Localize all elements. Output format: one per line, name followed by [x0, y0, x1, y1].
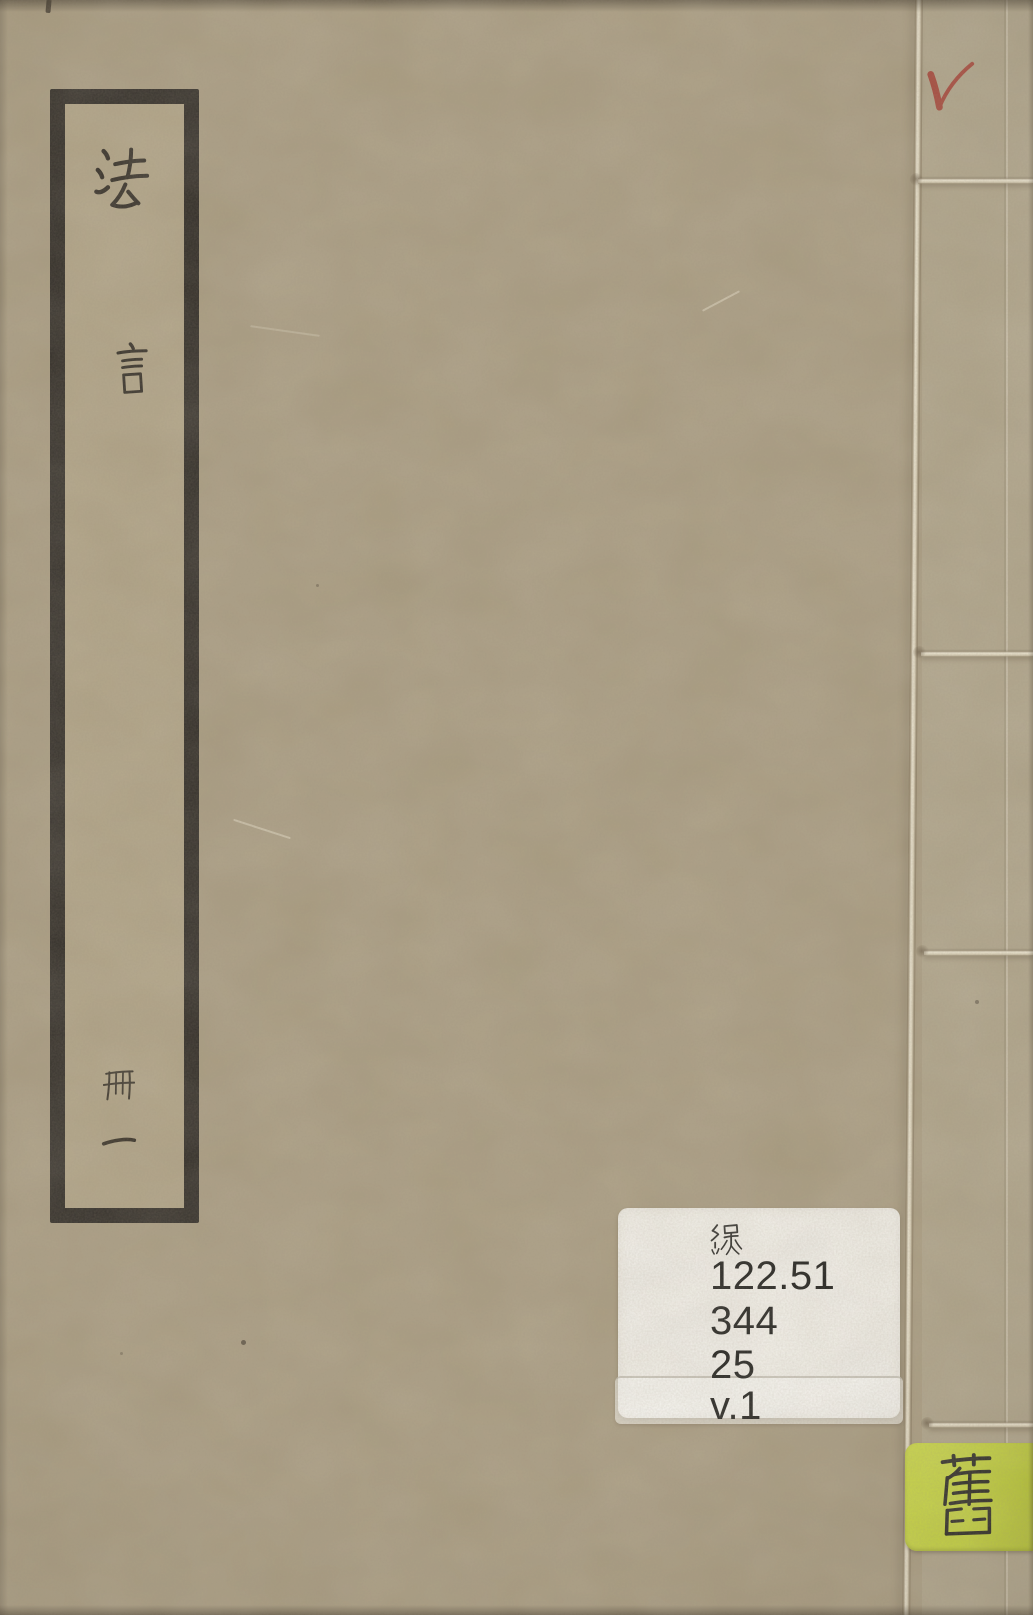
book-cover-scan: 122.51 344 25 v.1: [0, 0, 1033, 1615]
scan-vignette: [0, 0, 1033, 1615]
